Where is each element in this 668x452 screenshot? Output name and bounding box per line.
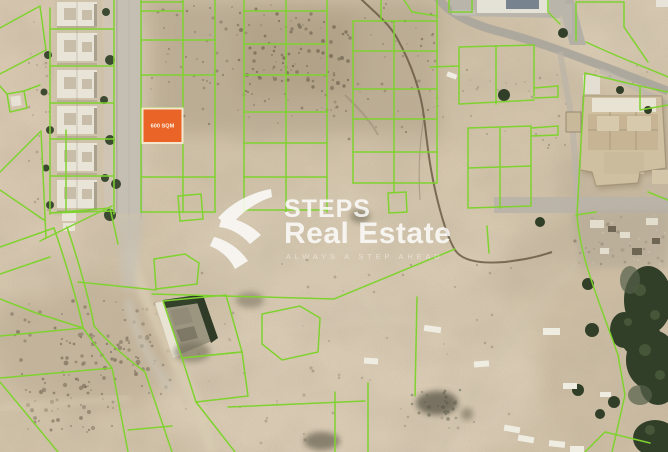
svg-text:600 SQM: 600 SQM [151,124,175,130]
svg-text:ALWAYS A STEP AHEAD: ALWAYS A STEP AHEAD [286,252,443,261]
svg-text:Real Estate: Real Estate [284,217,451,250]
